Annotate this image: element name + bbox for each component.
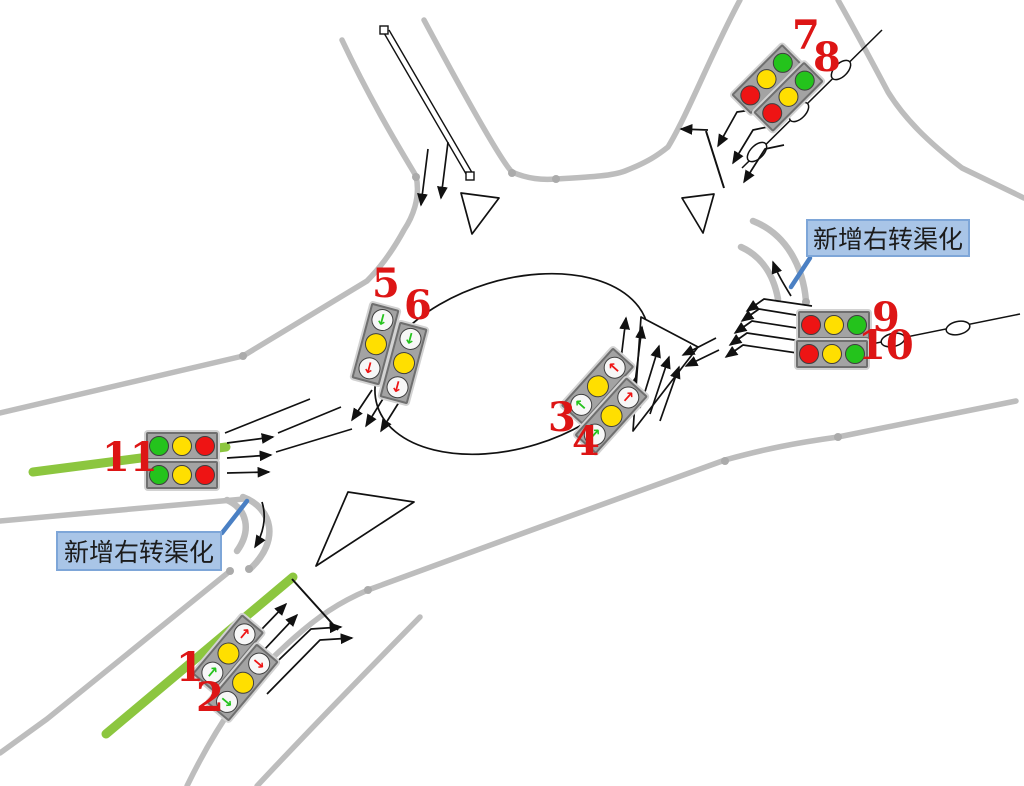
- red-ball-lens: [801, 315, 821, 335]
- lane-line-west-3: [225, 399, 310, 433]
- movement-arrows: [227, 109, 814, 694]
- triangle-island-center: [316, 492, 414, 566]
- intersection-channelization-diagram: 新增右转渠化 新增右转渠化 ↑↑→→←←↑↑↓↓↓↓1234567891011: [0, 0, 1024, 786]
- road-edge-northeast-right: [838, 0, 1024, 198]
- triangle-island-north: [461, 193, 499, 234]
- road-network-canvas: [0, 0, 1024, 786]
- ne-channel-arc-inner: [741, 247, 778, 299]
- yellow-ball-lens: [172, 465, 192, 485]
- yellow-ball-lens: [172, 436, 192, 456]
- signal-number-6: 6: [404, 286, 432, 326]
- red-ball-lens: [195, 465, 215, 485]
- road-edges: [0, 0, 1024, 786]
- yellow-ball-lens: [390, 349, 417, 376]
- channelization-arcs: [227, 221, 806, 569]
- red-ball-lens: [195, 436, 215, 456]
- road-edge-south-outer: [257, 617, 420, 786]
- label-leader-lines: [222, 258, 810, 533]
- green-arrow-lens: ↓: [368, 306, 395, 333]
- red-ball-lens: [799, 344, 819, 364]
- red-arrow-lens: ↓: [356, 355, 383, 382]
- signal-number-4: 4: [572, 422, 600, 462]
- road-edge-west-bottom: [0, 499, 244, 521]
- right-turn-channelization-label-ne: 新增右转渠化: [806, 219, 970, 257]
- yellow-ball-lens: [822, 344, 842, 364]
- signal-number-8: 8: [813, 38, 841, 78]
- road-edge-northwest-left: [0, 40, 417, 413]
- signal-number-5: 5: [372, 264, 400, 304]
- signal-number-2: 2: [196, 678, 224, 718]
- yellow-ball-lens: [824, 315, 844, 335]
- red-arrow-lens: ↓: [384, 374, 411, 401]
- signal-number-11: 11: [102, 438, 158, 478]
- yellow-ball-lens: [362, 331, 389, 358]
- right-turn-channelization-label-sw: 新增右转渠化: [56, 531, 222, 571]
- lane-line-west-2: [276, 429, 352, 452]
- road-edge-northwest-right-to-northeast: [424, 0, 740, 179]
- triangle-island-northeast: [682, 194, 714, 233]
- lane-line-west-1: [278, 407, 341, 433]
- signal-number-10: 10: [858, 326, 914, 366]
- green-arrow-lens: ↓: [397, 325, 424, 352]
